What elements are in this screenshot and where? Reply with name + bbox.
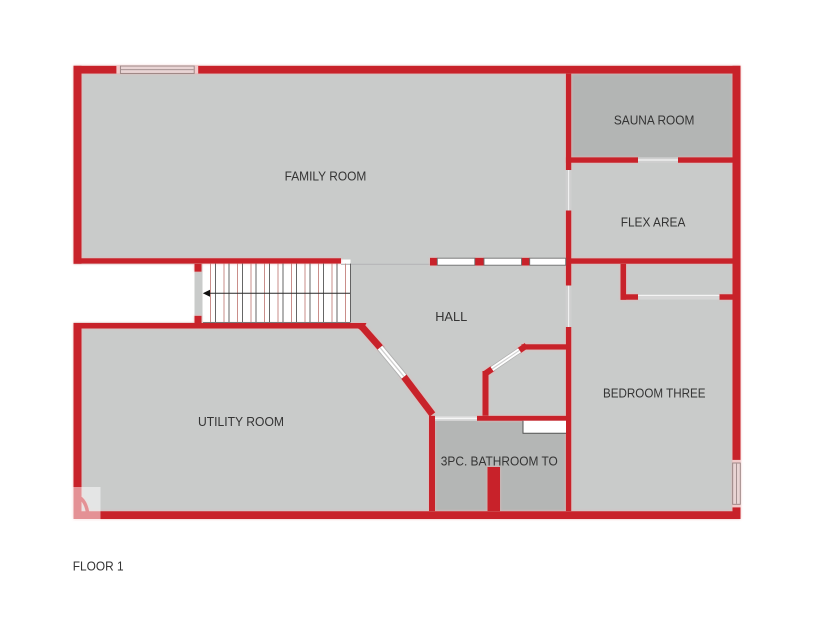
svg-text:BEDROOM THREE: BEDROOM THREE xyxy=(603,386,706,401)
svg-text:SAUNA ROOM: SAUNA ROOM xyxy=(614,113,695,128)
svg-text:FAMILY ROOM: FAMILY ROOM xyxy=(285,168,367,183)
svg-text:FLEX AREA: FLEX AREA xyxy=(621,214,686,229)
svg-text:HALL: HALL xyxy=(435,309,467,324)
svg-text:3PC. BATHROOM TO: 3PC. BATHROOM TO xyxy=(441,453,558,468)
svg-text:UTILITY ROOM: UTILITY ROOM xyxy=(198,414,284,429)
svg-text:FLOOR 1: FLOOR 1 xyxy=(73,559,124,574)
